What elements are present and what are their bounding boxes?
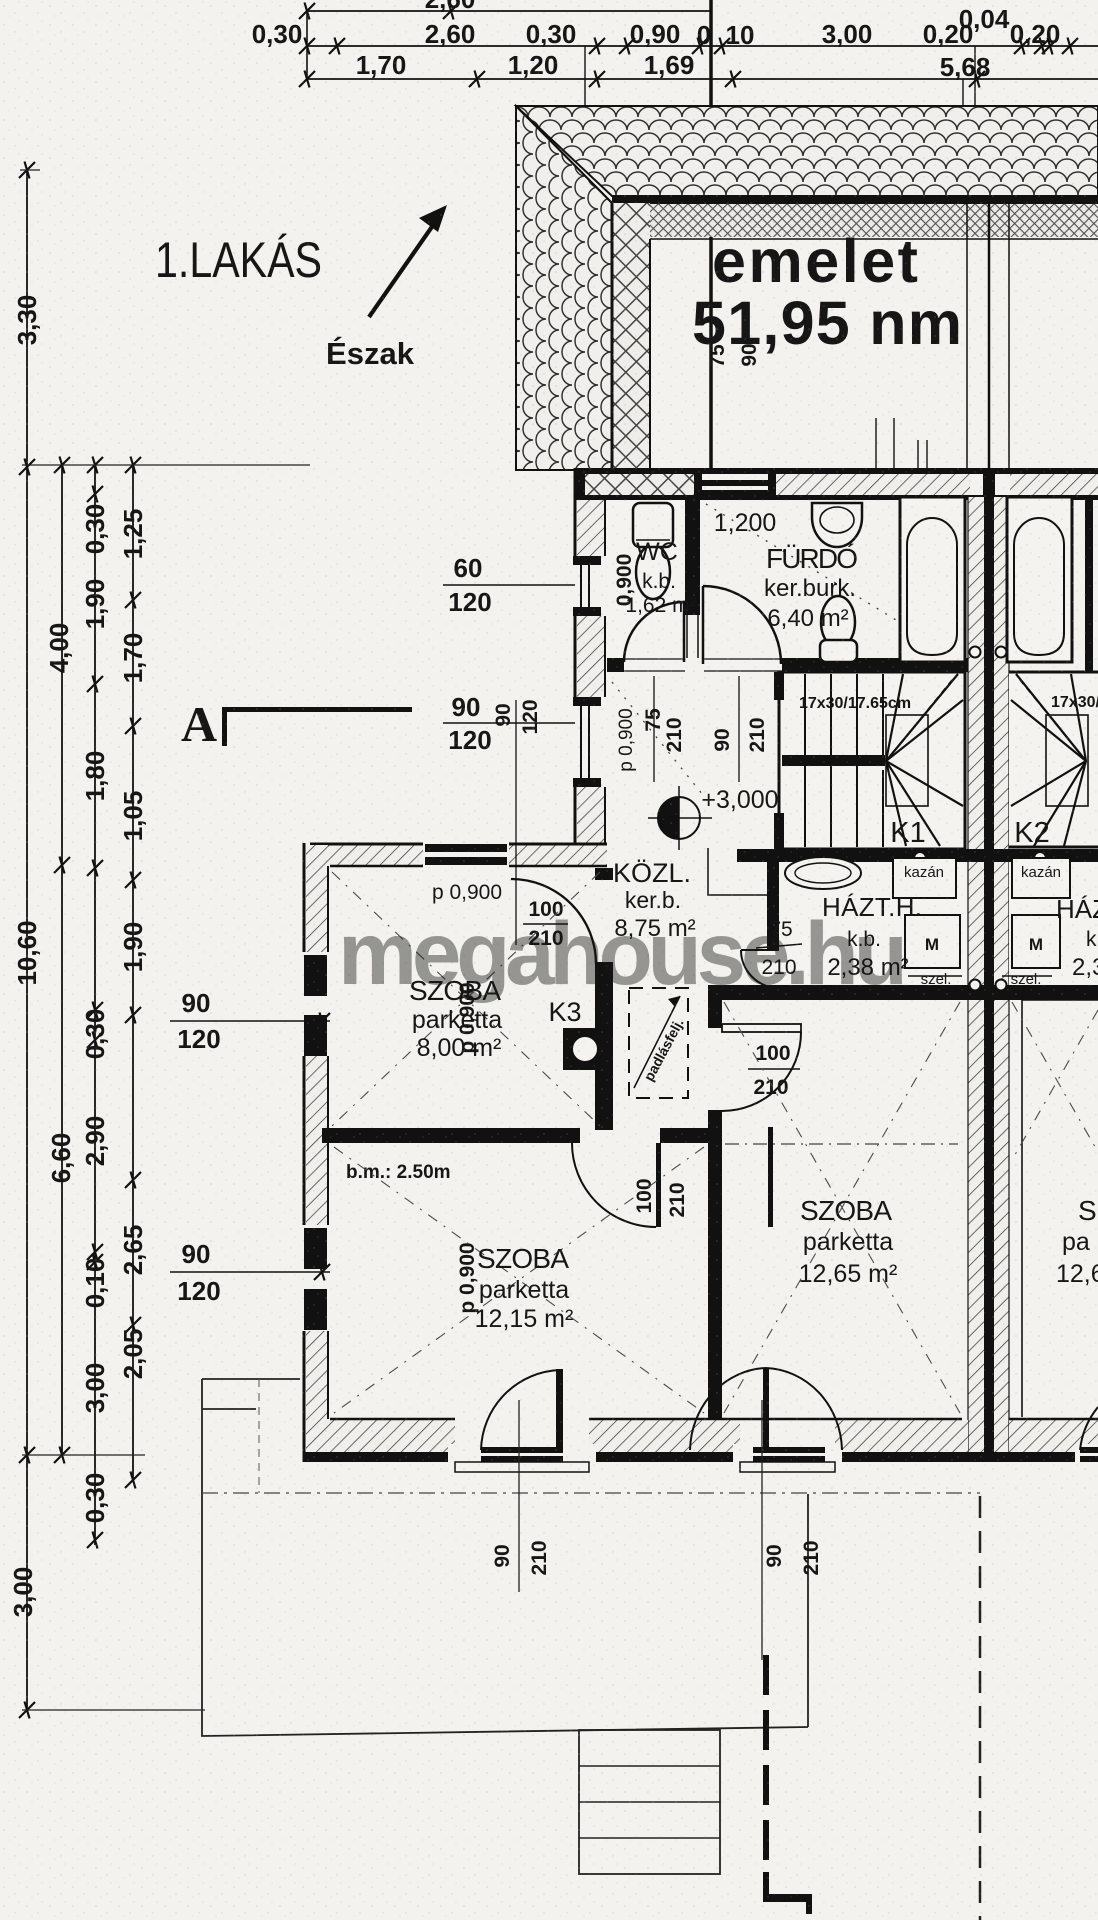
svg-text:megahouse.hu: megahouse.hu: [338, 903, 908, 1003]
